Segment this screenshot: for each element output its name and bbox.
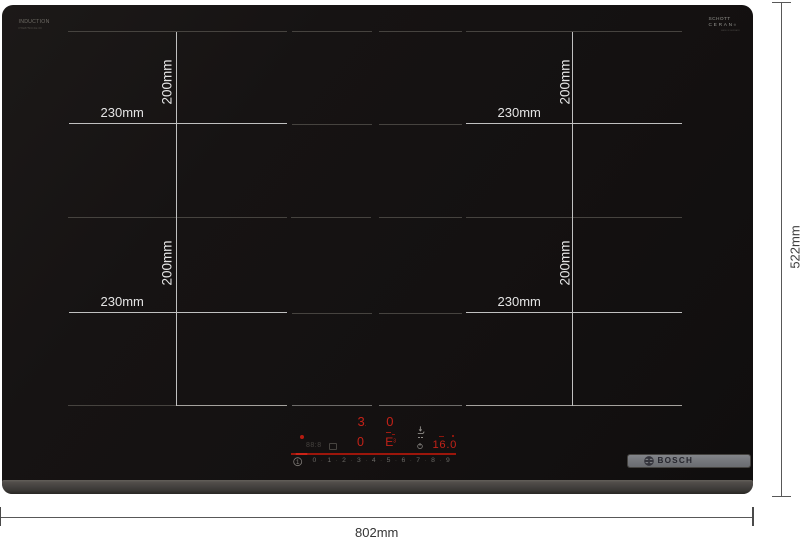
svg-text:1: 1	[296, 459, 300, 466]
